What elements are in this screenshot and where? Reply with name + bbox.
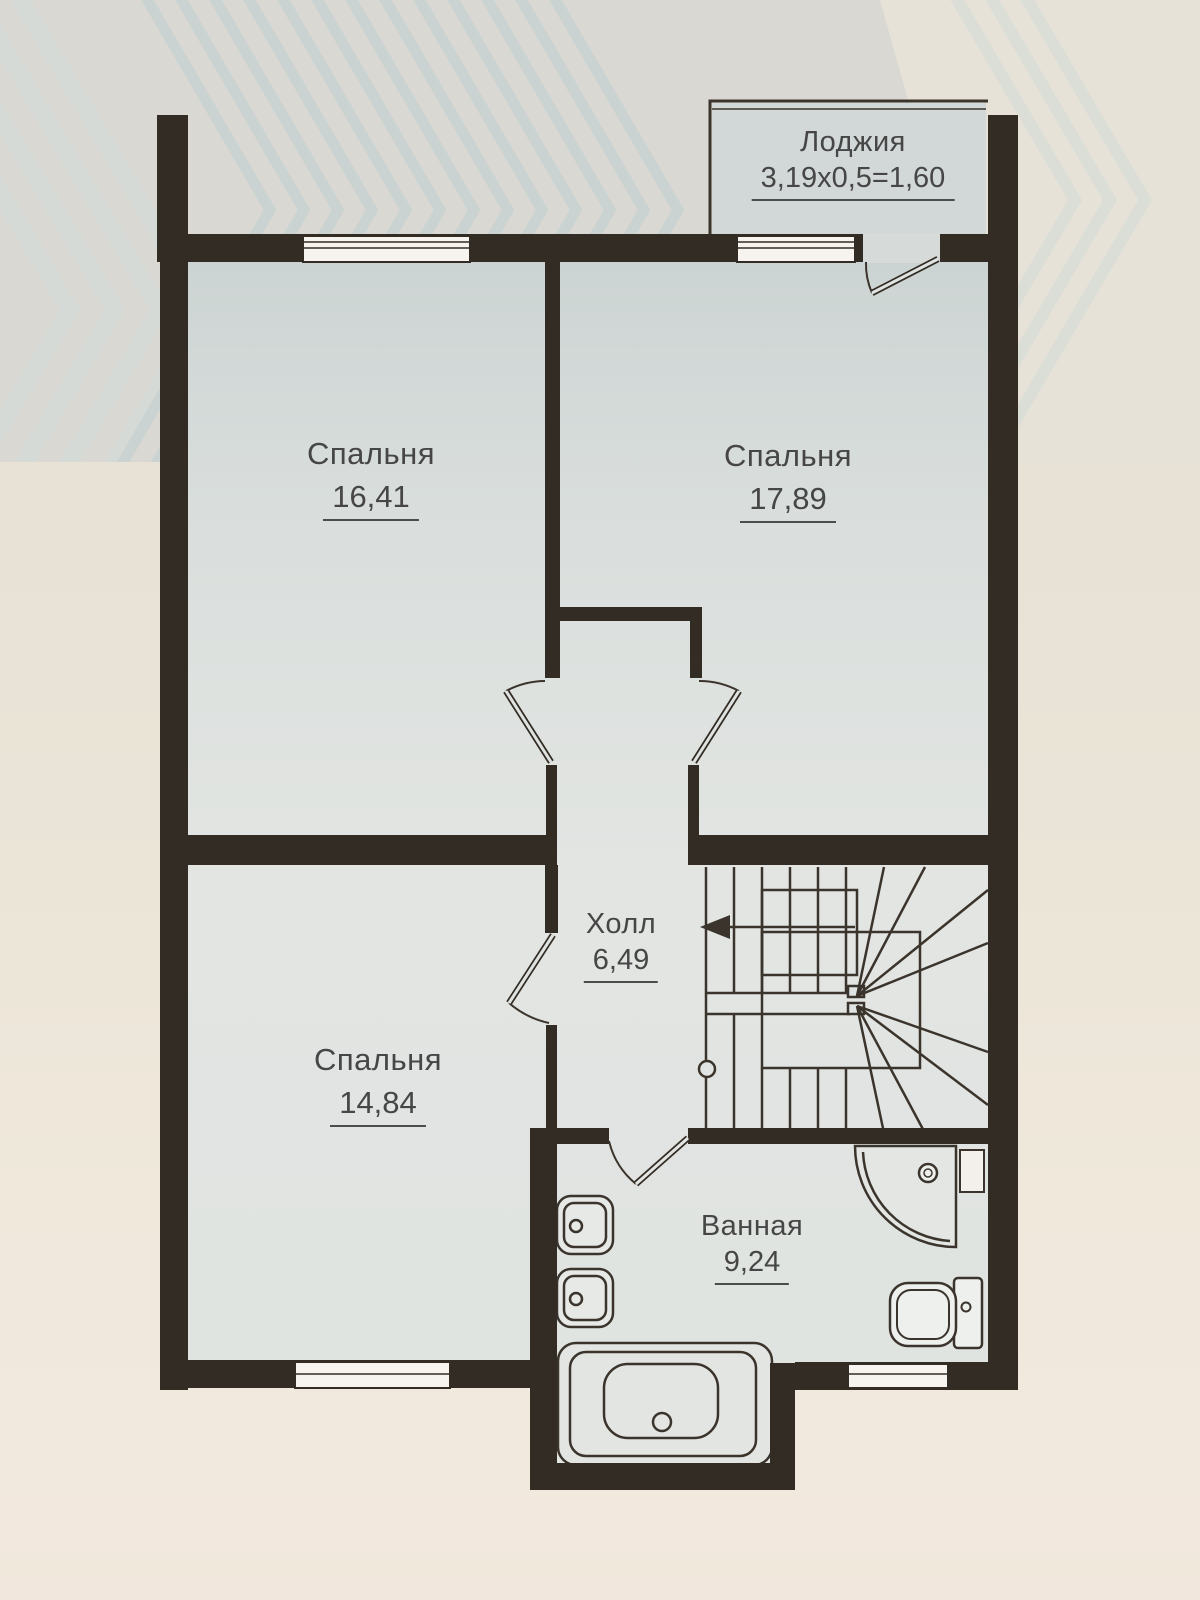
room-area: 14,84 xyxy=(314,1085,442,1127)
wall-funnel-right xyxy=(690,621,702,678)
room-label-hall: Холл 6,49 xyxy=(584,908,658,983)
stair-newel-post xyxy=(699,1061,715,1077)
room-area: 3,19x0,5=1,60 xyxy=(752,162,955,201)
wall-hall-jog xyxy=(545,607,702,621)
room-name: Спальня xyxy=(307,436,435,472)
window-bedroom1 xyxy=(303,236,470,262)
wall-door-stub-left xyxy=(546,765,557,838)
window-bathroom xyxy=(848,1364,948,1388)
wall-hall-left-a xyxy=(545,865,558,933)
wall-left xyxy=(160,234,188,1390)
wall-alcove-bottom xyxy=(530,1463,795,1490)
floor-plan-drawing xyxy=(0,0,1200,1600)
room-area: 6,49 xyxy=(584,944,658,983)
wall-bath-top-left xyxy=(557,1128,609,1144)
room-name: Спальня xyxy=(314,1042,442,1078)
room-label-bedroom2: Спальня 17,89 xyxy=(724,438,852,523)
toilet xyxy=(890,1278,982,1348)
wall-alcove-right xyxy=(770,1363,795,1490)
bathtub xyxy=(558,1343,772,1465)
wall-hall-left-b xyxy=(546,1025,557,1135)
wall-niche xyxy=(960,1150,984,1192)
floor-plan-photo: Лоджия 3,19x0,5=1,60 Спальня 16,41 Спаль… xyxy=(0,0,1200,1600)
room-floors xyxy=(188,103,988,1465)
room-label-loggia: Лоджия 3,19x0,5=1,60 xyxy=(752,126,955,201)
wall-right xyxy=(988,115,1018,1390)
wall-bath-left xyxy=(530,1128,557,1490)
wall-bedroom2-bottom xyxy=(688,835,1018,865)
wall-bath-top-right xyxy=(688,1128,988,1144)
room-name: Холл xyxy=(584,908,658,941)
room-area: 9,24 xyxy=(701,1246,803,1285)
room-area: 16,41 xyxy=(307,479,435,521)
room-name: Ванная xyxy=(701,1210,803,1243)
wall-door-stub-right xyxy=(688,765,699,838)
window-loggia xyxy=(737,236,855,262)
room-label-bedroom3: Спальня 14,84 xyxy=(314,1042,442,1127)
room-label-bedroom1: Спальня 16,41 xyxy=(307,436,435,521)
wall-bedroom1-bottom xyxy=(188,835,557,865)
window-bedroom3 xyxy=(295,1362,450,1388)
room-label-bathroom: Ванная 9,24 xyxy=(701,1210,803,1285)
room-area: 17,89 xyxy=(724,481,852,523)
room-name: Лоджия xyxy=(752,126,955,159)
room-name: Спальня xyxy=(724,438,852,474)
